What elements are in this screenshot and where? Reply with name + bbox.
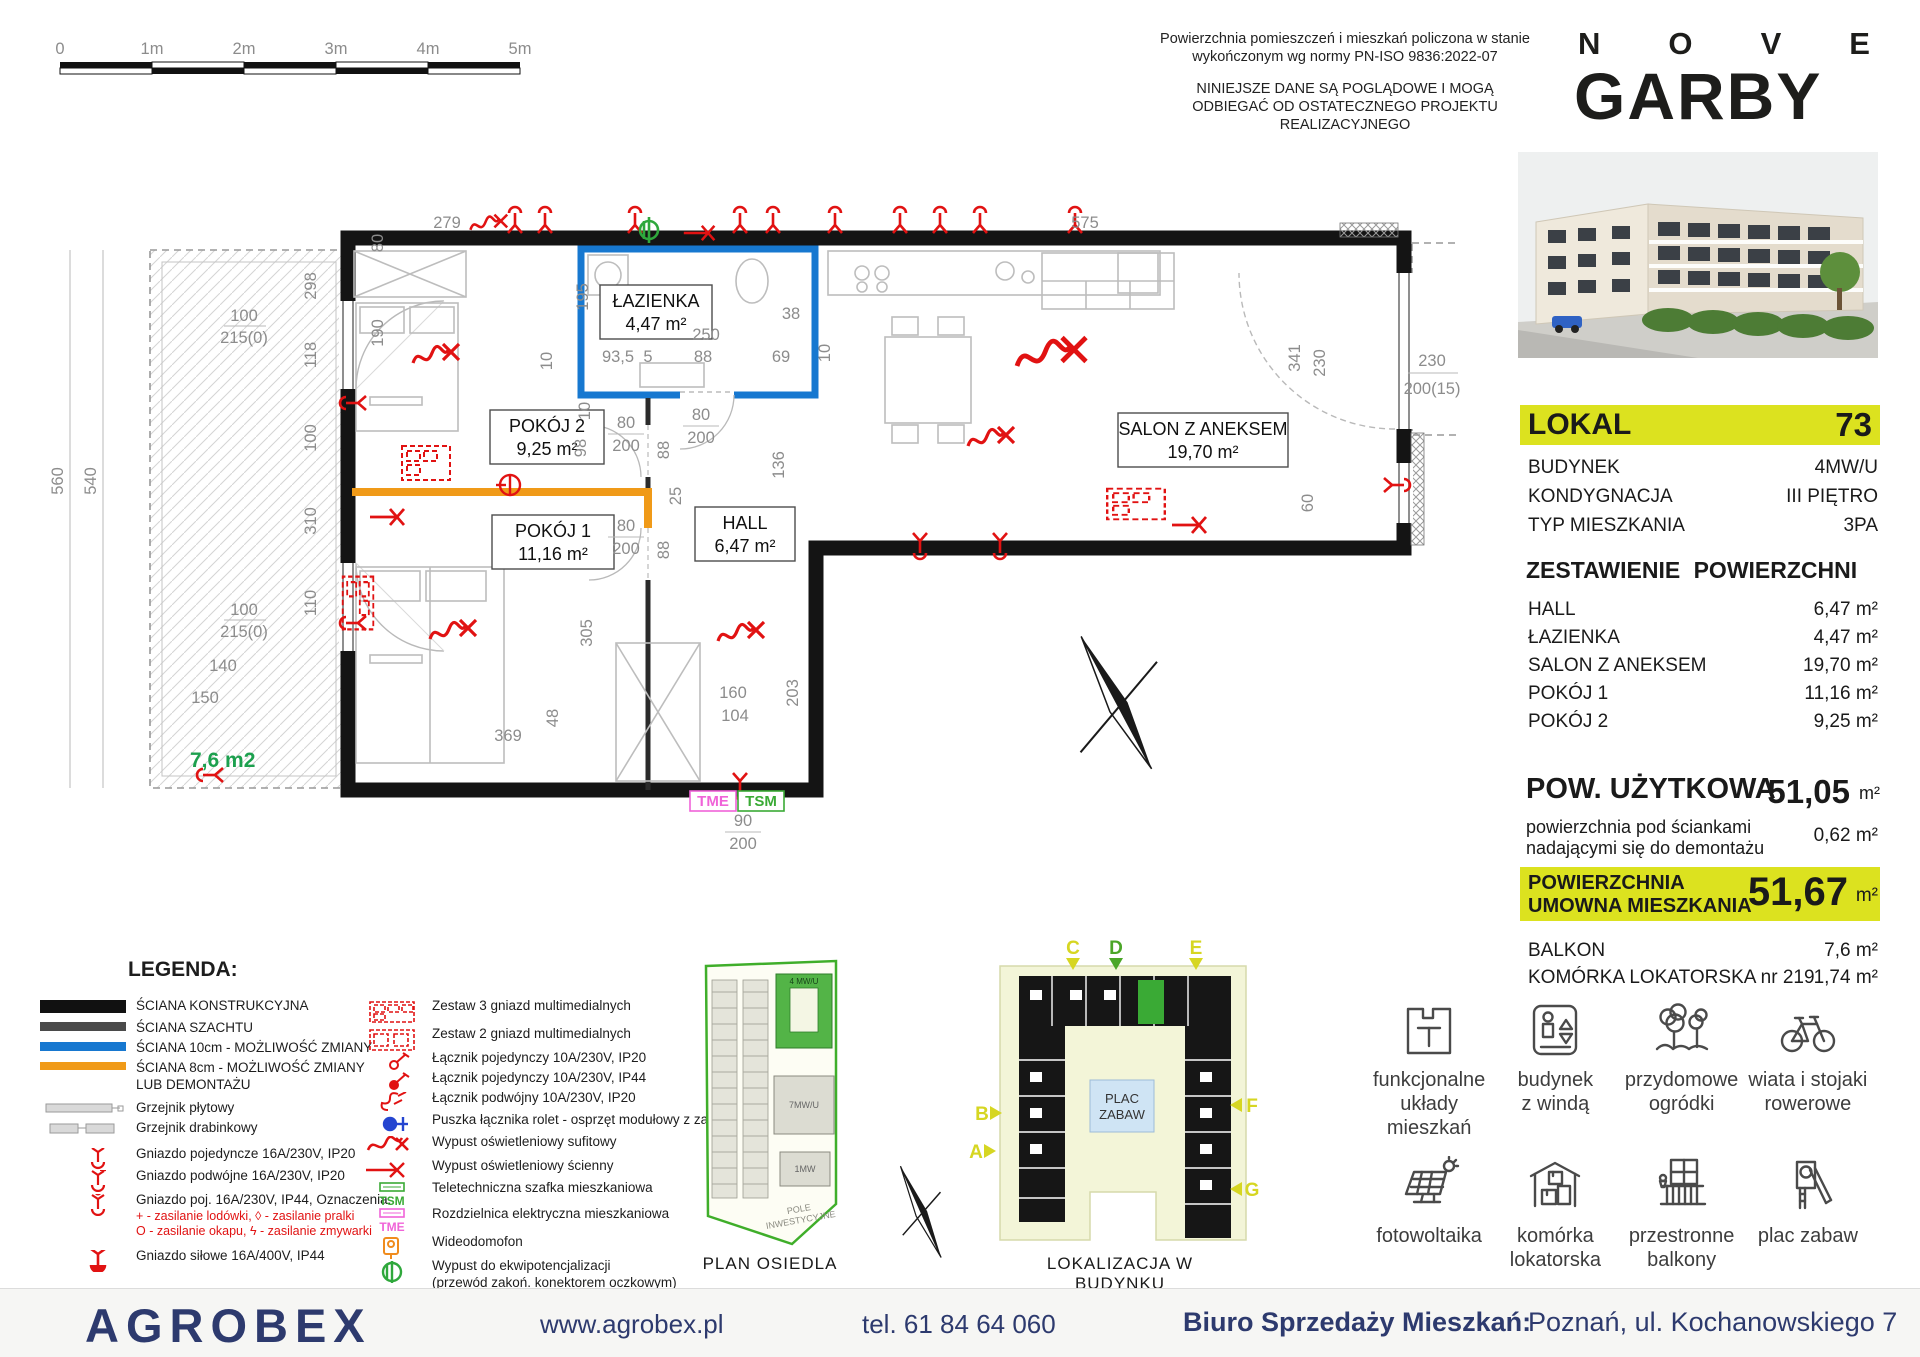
brand-garby-text: GARBY <box>1574 59 1822 133</box>
legend-label: Gniazdo podwójne 16A/230V, IP20 <box>136 1168 345 1183</box>
area-value: 19,70 m² <box>1803 655 1878 677</box>
dim-label: 310 <box>302 507 320 535</box>
footer-office-address: Poznań, ul. Kochanowskiego 7 <box>1528 1307 1897 1338</box>
dim-label: 140 <box>209 657 237 675</box>
dim-label: 48 <box>544 709 562 727</box>
dim-label: 60 <box>1299 494 1317 512</box>
brand-garby: GARBY <box>1574 64 1874 128</box>
dim-label: 215(0) <box>220 623 268 641</box>
scale-tick: 5m <box>509 40 532 58</box>
legend-label: ŚCIANA 8cm - MOŻLIWOŚĆ ZMIANY <box>136 1060 365 1075</box>
brand-letter: V <box>1761 26 1782 62</box>
switch-double-icon <box>350 1092 436 1114</box>
dim-label: 136 <box>770 451 788 479</box>
room-area: 11,16 m² <box>518 544 588 564</box>
info-value: 3PA <box>1843 515 1878 537</box>
dim-label: 341 <box>1286 344 1304 372</box>
info-value: III PIĘTRO <box>1786 486 1878 508</box>
room-area: 6,47 m² <box>714 536 775 556</box>
walls-note-2: nadającymi się do demontażu <box>1526 838 1764 859</box>
contract-label-1: POWIERZCHNIA <box>1528 872 1685 895</box>
feature-gardens: przydomowe ogródki <box>1619 1000 1745 1140</box>
wall-10cm-swatch <box>40 1042 126 1051</box>
dim-label: 160 <box>719 684 747 702</box>
dim-label: 104 <box>721 707 749 725</box>
legend-label: Zestaw 3 gniazd multimedialnych <box>432 998 631 1013</box>
estate-building-tag: 4 MW/U <box>790 977 819 986</box>
footer-website[interactable]: www.agrobex.pl <box>540 1309 724 1340</box>
socket-power-icon <box>40 1250 126 1272</box>
insulation-hatch <box>1340 223 1398 237</box>
feature-label: ogródki <box>1619 1092 1745 1116</box>
areas-title: ZESTAWIENIE POWIERZCHNI <box>1526 557 1857 584</box>
scale-bar: 0 1m 2m 3m 4m 5m <box>45 38 565 90</box>
brand-nove: N O V E <box>1574 26 1874 62</box>
lokal-band: LOKAL 73 <box>1520 405 1880 445</box>
dim-label: 38 <box>782 305 800 323</box>
feature-label: lokatorska <box>1492 1248 1618 1272</box>
dim-label: 100 <box>230 307 258 325</box>
switch-single-icon <box>350 1052 436 1072</box>
contract-band: POWIERZCHNIA UMOWNA MIESZKANIA 51,67 m² <box>1520 867 1880 921</box>
playground-area <box>1090 1080 1154 1132</box>
dim-label: 80 <box>617 414 635 432</box>
area-label: HALL <box>1528 599 1576 621</box>
floor-plan: TME TSM 7,6 m2 ŁAZIENKA 4,47 m² POKÓJ 2 … <box>40 185 1460 885</box>
estate-plan-caption: PLAN OSIEDLA <box>680 1254 860 1274</box>
right-balcony <box>1412 243 1460 435</box>
legend-label: Grzejnik drabinkowy <box>136 1120 258 1135</box>
legend-label: Łącznik pojedynczy 10A/230V, IP44 <box>432 1070 646 1085</box>
svg-text:E: E <box>1190 940 1203 959</box>
svg-text:F: F <box>1246 1096 1258 1117</box>
dim-label: 560 <box>49 467 67 495</box>
legend-label: Rozdzielnica elektryczna mieszkaniowa <box>432 1206 669 1221</box>
small-compass-icon <box>880 1150 960 1270</box>
feature-label: plac zabaw <box>1745 1224 1871 1248</box>
room-name: SALON Z ANEKSEM <box>1118 419 1287 439</box>
dim-label: 200 <box>612 437 640 455</box>
legend-label: ŚCIANA SZACHTU <box>136 1020 253 1035</box>
multimedia-3-icon <box>350 1000 436 1026</box>
feature-label: fotowoltaika <box>1366 1224 1492 1248</box>
feature-playground: plac zabaw <box>1745 1156 1871 1272</box>
svg-text:D: D <box>1109 940 1123 959</box>
socket-ip44-icon <box>40 1194 126 1216</box>
legend: LEGENDA: ŚCIANA KONSTRUKCYJNA ŚCIANA SZA… <box>40 958 690 1278</box>
features-grid: funkcjonalne układy mieszkań budynek z w… <box>1366 1000 1871 1272</box>
dim-label: 88 <box>655 541 673 559</box>
legend-label: ŚCIANA KONSTRUKCYJNA <box>136 998 309 1013</box>
wall-light-icon <box>350 1160 436 1180</box>
storage-room-icon <box>1524 1156 1586 1218</box>
dim-label: 88 <box>694 348 712 366</box>
feature-photovoltaics: fotowoltaika <box>1366 1156 1492 1272</box>
feature-label: funkcjonalne <box>1366 1068 1492 1092</box>
feature-floorplans: funkcjonalne układy mieszkań <box>1366 1000 1492 1140</box>
floorplan-icon <box>1398 1000 1460 1062</box>
scale-tick: 0 <box>55 40 64 58</box>
balcony-area-label: 7,6 m2 <box>190 749 255 772</box>
socket-single-icon <box>40 1148 126 1170</box>
legend-label: Teletechniczna szafka mieszkaniowa <box>432 1180 653 1195</box>
tme-icon: TME <box>350 1208 436 1234</box>
playground-label: PLAC <box>1105 1091 1139 1106</box>
area-label: ŁAZIENKA <box>1528 627 1620 649</box>
extra-value: 1,74 m² <box>1814 967 1878 989</box>
feature-label: wiata i stojaki <box>1745 1068 1871 1092</box>
room-area: 19,70 m² <box>1167 442 1238 462</box>
dim-label: 369 <box>494 727 522 745</box>
radiator-panel-icon <box>40 1102 126 1116</box>
legend-label: Gniazdo siłowe 16A/400V, IP44 <box>136 1248 325 1263</box>
estate-plan-map: 4 MW/U 7MW/U 1MW POLE INWESTYCYJNE <box>700 958 840 1248</box>
feature-label: budynek <box>1492 1068 1618 1092</box>
multimedia-2-icon <box>350 1028 436 1054</box>
legend-title: LEGENDA: <box>128 958 238 982</box>
walls-note-value: 0,62 m² <box>1814 825 1878 846</box>
dim-label: 215(0) <box>220 329 268 347</box>
feature-balconies: przestronne balkony <box>1619 1156 1745 1272</box>
legend-label: Wideodomofon <box>432 1234 523 1249</box>
brand-letter: E <box>1849 26 1870 62</box>
extra-value: 7,6 m² <box>1824 940 1878 962</box>
footer: AGROBEX www.agrobex.pl tel. 61 84 64 060… <box>0 1288 1920 1357</box>
legend-label: Łącznik podwójny 10A/230V, IP20 <box>432 1090 636 1105</box>
videophone-icon <box>350 1236 436 1260</box>
usable-value: 51,05 <box>1767 773 1850 811</box>
dim-label: 90 <box>734 812 752 830</box>
room-name: HALL <box>722 513 767 533</box>
svg-text:B: B <box>975 1104 989 1125</box>
trees-icon <box>1651 1000 1713 1062</box>
elevator-icon <box>1524 1000 1586 1062</box>
dim-label: 118 <box>302 342 320 368</box>
building-location-map: PLAC ZABAW C D E B A F G <box>960 940 1260 1250</box>
dim-label: 230 <box>1311 349 1329 377</box>
disclaimer-norm: Powierzchnia pomieszczeń i mieszkań poli… <box>1160 30 1530 66</box>
lokal-number: 73 <box>1835 406 1872 444</box>
roller-box-icon <box>350 1114 436 1134</box>
room-area: 9,25 m² <box>516 439 577 459</box>
walls-note-1: powierzchnia pod ściankami <box>1526 817 1751 838</box>
legend-label: ŚCIANA 10cm - MOŻLIWOŚĆ ZMIANY <box>136 1040 372 1055</box>
estate-building-tag: 1MW <box>795 1164 817 1174</box>
scale-tick: 4m <box>417 40 440 58</box>
brand-logo: N O V E GARBY <box>1574 26 1874 128</box>
room-name: ŁAZIENKA <box>612 291 699 311</box>
dim-label: 110 <box>302 590 320 616</box>
balcony-icon <box>1651 1156 1713 1218</box>
area-label: SALON Z ANEKSEM <box>1528 655 1706 677</box>
contract-label-2: UMOWNA MIESZKANIA <box>1528 895 1752 918</box>
feature-label: układy mieszkań <box>1366 1092 1492 1140</box>
dim-label: 100 <box>302 424 320 452</box>
dim-label: 575 <box>1071 214 1099 232</box>
area-label: POKÓJ 1 <box>1528 683 1608 705</box>
wall-8cm-swatch <box>40 1062 126 1070</box>
feature-label: przydomowe <box>1619 1068 1745 1092</box>
usable-label: POW. UŻYTKOWA <box>1526 773 1776 806</box>
dim-label: 150 <box>191 689 219 707</box>
svg-text:G: G <box>1245 1180 1260 1201</box>
dim-label: 98 <box>572 439 590 457</box>
footer-phone: tel. 61 84 64 060 <box>862 1309 1056 1340</box>
feature-elevator: budynek z windą <box>1492 1000 1618 1140</box>
svg-text:A: A <box>969 1142 983 1163</box>
dim-label: 10 <box>816 344 834 362</box>
walls-note-row: powierzchnia pod ściankami nadającymi si… <box>1520 817 1880 838</box>
dim-label: 88 <box>655 441 673 459</box>
dim-label: 279 <box>433 214 461 232</box>
feature-label: przestronne <box>1619 1224 1745 1248</box>
apartment-floor <box>348 238 1404 790</box>
area-value: 11,16 m² <box>1804 683 1878 705</box>
legend-label: Gniazdo pojedyncze 16A/230V, IP20 <box>136 1146 355 1161</box>
dim-label: 69 <box>772 348 790 366</box>
wall-structural-swatch <box>40 1000 126 1013</box>
wall-shaft-swatch <box>40 1022 126 1031</box>
legend-note: + - zasilanie lodówki, ◊ - zasilanie pra… <box>136 1209 354 1223</box>
legend-label: Wypust oświetleniowy ścienny <box>432 1158 613 1173</box>
info-label: BUDYNEK <box>1528 457 1620 479</box>
feature-label: z windą <box>1492 1092 1618 1116</box>
feature-label: komórka <box>1492 1224 1618 1248</box>
disclaimer: Powierzchnia pomieszczeń i mieszkań poli… <box>1160 30 1530 134</box>
compass-icon <box>1033 611 1201 795</box>
contract-unit: m² <box>1856 885 1878 907</box>
room-name: POKÓJ 2 <box>509 415 585 436</box>
extra-label: KOMÓRKA LOKATORSKA nr 219 <box>1528 967 1815 989</box>
usable-unit: m² <box>1859 783 1880 804</box>
area-label: POKÓJ 2 <box>1528 711 1608 733</box>
feature-label: rowerowe <box>1745 1092 1871 1116</box>
playground-icon <box>1777 1156 1839 1218</box>
area-value: 6,47 m² <box>1814 599 1878 621</box>
brand-letter: O <box>1668 26 1692 62</box>
bicycle-icon <box>1777 1000 1839 1062</box>
legend-note: O - zasilanie okapu, ϟ - zasilanie zmywa… <box>136 1224 372 1238</box>
svg-text:TSM: TSM <box>379 1194 404 1208</box>
svg-text:TME: TME <box>379 1220 404 1234</box>
info-value: 4MW/U <box>1815 457 1878 479</box>
equipotential-icon <box>350 1260 436 1286</box>
dim-label: 190 <box>369 319 387 347</box>
info-label: KONDYGNACJA <box>1528 486 1673 508</box>
disclaimer-note: NINIEJSZE DANE SĄ POGLĄDOWE I MOGĄ ODBIE… <box>1160 80 1530 134</box>
brand-letter: N <box>1578 26 1600 62</box>
dim-label: 200(15) <box>1404 380 1460 398</box>
agrobex-logo: AGROBEX <box>85 1298 372 1353</box>
feature-label: balkony <box>1619 1248 1745 1272</box>
radiator-ladder-icon <box>40 1122 126 1136</box>
dim-label: 200 <box>729 835 757 853</box>
room-name: POKÓJ 1 <box>515 520 591 541</box>
ceiling-light-icon <box>350 1136 436 1160</box>
legend-label: Grzejnik płytowy <box>136 1100 234 1115</box>
dim-label: 200 <box>687 429 715 447</box>
window-right <box>1395 463 1413 523</box>
dim-label: 5 <box>643 348 652 366</box>
dim-label: 10 <box>576 402 594 420</box>
dim-label: 250 <box>692 326 720 344</box>
dim-label: 10 <box>538 352 556 370</box>
scale-tick: 1m <box>141 40 164 58</box>
building-render-image <box>1518 152 1878 358</box>
dim-label: 298 <box>302 272 320 300</box>
tsm-tag: TSM <box>745 793 777 810</box>
tme-tag: TME <box>697 793 729 810</box>
playground-label: ZABAW <box>1099 1107 1145 1122</box>
dim-label: 80 <box>692 406 710 424</box>
feature-bikes: wiata i stojaki rowerowe <box>1745 1000 1871 1140</box>
unit-panel: LOKAL 73 BUDYNEK4MW/U KONDYGNACJAIII PIĘ… <box>1520 405 1880 1005</box>
scale-tick: 3m <box>325 40 348 58</box>
area-value: 9,25 m² <box>1814 711 1878 733</box>
feature-storage: komórka lokatorska <box>1492 1156 1618 1272</box>
legend-label: Zestaw 2 gniazd multimedialnych <box>432 1026 631 1041</box>
footer-office-label: Biuro Sprzedaży Mieszkań: <box>1183 1307 1531 1338</box>
highlighted-unit <box>1138 980 1164 1024</box>
scale-tick: 2m <box>233 40 256 58</box>
estate-building-tag: 7MW/U <box>789 1100 819 1110</box>
dim-label: 200 <box>612 540 640 558</box>
info-label: TYP MIESZKANIA <box>1528 515 1685 537</box>
switch-single-ip44-icon <box>350 1072 436 1092</box>
dim-label: 305 <box>578 619 596 647</box>
solar-panel-icon <box>1398 1156 1460 1218</box>
dim-label: 25 <box>667 487 685 505</box>
legend-label: Wypust do ekwipotencjalizacji <box>432 1258 610 1273</box>
dim-label: 195 <box>574 283 592 311</box>
dim-label: 203 <box>784 679 802 707</box>
socket-double-icon <box>40 1170 126 1192</box>
legend-label: LUB DEMONTAŻU <box>136 1077 251 1092</box>
extra-label: BALKON <box>1528 940 1605 962</box>
dim-label: 230 <box>1418 352 1446 370</box>
dim-label: 540 <box>82 467 100 495</box>
contract-value: 51,67 <box>1748 870 1848 915</box>
room-area: 4,47 m² <box>625 314 686 334</box>
dim-label: 80 <box>369 234 387 252</box>
scale-bar-segments <box>60 62 520 74</box>
legend-label: Łącznik pojedynczy 10A/230V, IP20 <box>432 1050 646 1065</box>
area-value: 4,47 m² <box>1814 627 1878 649</box>
legend-label: Wypust oświetleniowy sufitowy <box>432 1134 616 1149</box>
dim-label: 80 <box>617 517 635 535</box>
tsm-icon: TSM <box>350 1182 436 1208</box>
svg-text:C: C <box>1066 940 1080 959</box>
page: 0 1m 2m 3m 4m 5m Powierzchnia pomieszcze… <box>0 0 1920 1357</box>
dim-label: 93,5 <box>602 348 634 366</box>
dim-label: 100 <box>230 601 258 619</box>
lokal-label: LOKAL <box>1528 408 1631 442</box>
